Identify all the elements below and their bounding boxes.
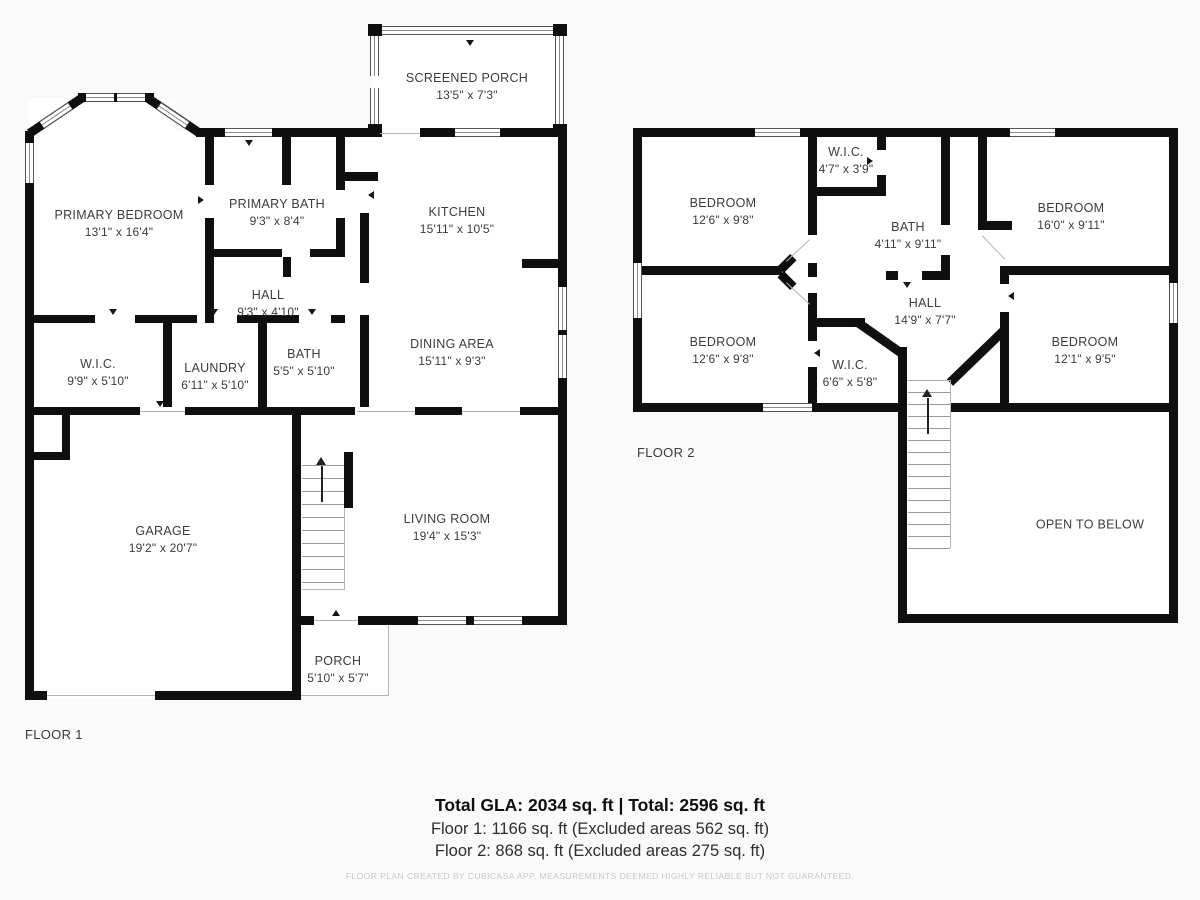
wall <box>258 323 267 407</box>
opening-line <box>950 380 951 548</box>
wall <box>336 128 345 190</box>
room-label-laundry: LAUNDRY6'11" x 5'10" <box>181 360 249 394</box>
room-dims: 6'6" x 5'8" <box>823 374 878 391</box>
room-dims: 19'4" x 15'3" <box>404 528 491 545</box>
wall <box>941 137 950 225</box>
room-name: BEDROOM <box>690 195 757 212</box>
wall <box>272 128 380 137</box>
window <box>474 616 522 625</box>
room-dims: 9'3" x 4'10" <box>237 304 299 321</box>
opening-line <box>302 589 345 590</box>
stairs-up-arrow <box>927 398 929 434</box>
floor2-label: FLOOR 2 <box>637 445 695 460</box>
door-arrow-icon <box>308 309 316 315</box>
room-dims: 12'6" x 9'8" <box>690 351 757 368</box>
wall <box>155 691 301 700</box>
window <box>370 88 379 124</box>
room-label-dining-area: DINING AREA15'11" x 9'3" <box>410 336 494 370</box>
wall <box>800 128 1010 137</box>
wall <box>420 128 455 137</box>
window <box>382 26 553 35</box>
room-label-bath-f2: BATH4'11" x 9'11" <box>875 219 942 253</box>
wall <box>282 137 291 185</box>
wall <box>633 128 755 137</box>
opening-line <box>47 695 155 696</box>
wall <box>950 403 1178 412</box>
opening-line <box>357 411 415 412</box>
wall <box>978 137 987 230</box>
room-dims: 9'3" x 8'4" <box>229 213 325 230</box>
wall <box>1169 128 1178 283</box>
window <box>755 128 800 137</box>
door-arrow-icon <box>245 140 253 146</box>
wall <box>522 259 558 268</box>
wall <box>922 271 950 280</box>
room-label-open-to-below: OPEN TO BELOW <box>1036 517 1144 534</box>
room-dims: 6'11" x 5'10" <box>181 377 249 394</box>
wall <box>898 347 907 623</box>
room-label-bedroom-3: BEDROOM12'6" x 9'8" <box>690 334 757 368</box>
wall <box>978 221 1012 230</box>
room-name: BATH <box>273 346 335 363</box>
wall <box>205 249 282 257</box>
room-name: W.I.C. <box>819 144 874 161</box>
room-label-screened-porch: SCREENED PORCH13'5" x 7'3" <box>406 70 528 104</box>
wall <box>185 407 355 415</box>
stair-tread <box>908 536 950 537</box>
wall <box>331 315 345 323</box>
wall <box>877 175 886 196</box>
door-arrow-icon <box>332 610 340 616</box>
wall <box>877 137 886 150</box>
wall <box>135 315 197 323</box>
opening-line <box>314 620 358 621</box>
door-arrow-icon <box>814 349 820 357</box>
room-name: PORCH <box>307 653 369 670</box>
stair-tread <box>908 500 950 501</box>
wall <box>25 407 140 415</box>
room-dims: 12'1" x 9'5" <box>1052 351 1119 368</box>
wall <box>558 128 567 287</box>
room-label-garage: GARAGE19'2" x 20'7" <box>129 523 197 557</box>
stair-tread <box>908 488 950 489</box>
wall <box>368 24 382 36</box>
door-arrow-icon <box>466 40 474 46</box>
stair-tread <box>302 543 344 544</box>
window <box>1010 128 1055 137</box>
room-name: LAUNDRY <box>181 360 249 377</box>
stair-tread <box>302 504 344 505</box>
room-label-porch: PORCH5'10" x 5'7" <box>307 653 369 687</box>
floorplan-drawing <box>0 0 1200 900</box>
wall <box>25 452 70 460</box>
room-dims: 5'5" x 5'10" <box>273 363 335 380</box>
wall <box>310 249 345 257</box>
window <box>558 287 567 330</box>
room-name: PRIMARY BEDROOM <box>54 207 183 224</box>
wall <box>898 614 1178 623</box>
room-name: OPEN TO BELOW <box>1036 517 1144 534</box>
wall <box>344 452 353 508</box>
room-label-bedroom-2: BEDROOM16'0" x 9'11" <box>1037 200 1105 234</box>
room-label-wic-1-f2: W.I.C.4'7" x 3'9" <box>819 144 874 178</box>
wall <box>25 691 47 700</box>
stairs-up-arrow <box>316 457 326 465</box>
door-arrow-icon <box>210 309 218 315</box>
opening-line <box>140 411 185 412</box>
wall <box>205 218 214 323</box>
stair-tread <box>908 476 950 477</box>
disclaimer-text: FLOOR PLAN CREATED BY CUBICASA APP. MEAS… <box>0 871 1200 881</box>
wall <box>360 213 369 283</box>
stair-tread <box>908 404 950 405</box>
room-label-bedroom-4: BEDROOM12'1" x 9'5" <box>1052 334 1119 368</box>
wall <box>520 407 567 415</box>
opening-line <box>907 380 950 381</box>
room-name: SCREENED PORCH <box>406 70 528 87</box>
room-name: W.I.C. <box>67 356 129 373</box>
total-gla-text: Total GLA: 2034 sq. ft | Total: 2596 sq.… <box>0 795 1200 816</box>
room-name: BEDROOM <box>690 334 757 351</box>
room-dims: 15'11" x 9'3" <box>410 353 494 370</box>
stair-tread <box>302 465 344 466</box>
window <box>633 263 642 318</box>
window <box>455 128 500 137</box>
wall <box>292 412 301 700</box>
wall <box>360 315 369 407</box>
window <box>225 128 272 137</box>
stair-tread <box>302 530 344 531</box>
room-dims: 9'9" x 5'10" <box>67 373 129 390</box>
room-label-kitchen: KITCHEN15'11" x 10'5" <box>420 204 494 238</box>
floor1-label: FLOOR 1 <box>25 727 83 742</box>
wall <box>1000 266 1178 275</box>
window-mullion <box>114 93 117 102</box>
room-name: BEDROOM <box>1037 200 1105 217</box>
floor2-area-text: Floor 2: 868 sq. ft (Excluded areas 275 … <box>0 842 1200 861</box>
room-dims: 13'1" x 16'4" <box>54 224 183 241</box>
wall <box>812 403 898 412</box>
room-name: BATH <box>875 219 942 236</box>
room-dims: 19'2" x 20'7" <box>129 540 197 557</box>
floor1-area-text: Floor 1: 1166 sq. ft (Excluded areas 562… <box>0 820 1200 839</box>
room-name: DINING AREA <box>410 336 494 353</box>
window <box>763 403 812 412</box>
stair-tread <box>302 517 344 518</box>
wall <box>205 137 214 185</box>
wall <box>1000 275 1009 284</box>
room-dims: 15'11" x 10'5" <box>420 221 494 238</box>
room-name: HALL <box>237 287 299 304</box>
room-label-living-room: LIVING ROOM19'4" x 15'3" <box>404 511 491 545</box>
stair-tread <box>908 512 950 513</box>
wall <box>1055 128 1178 137</box>
stair-tread <box>908 548 950 549</box>
wall <box>345 172 378 181</box>
room-name: W.I.C. <box>823 357 878 374</box>
stair-tread <box>302 582 344 583</box>
room-dims: 14'9" x 7'7" <box>894 312 956 329</box>
opening-line <box>388 625 389 696</box>
wall <box>808 263 817 277</box>
stair-tread <box>908 416 950 417</box>
room-name: BEDROOM <box>1052 334 1119 351</box>
room-label-wic-f1: W.I.C.9'9" x 5'10" <box>67 356 129 390</box>
room-label-wic-2-f2: W.I.C.6'6" x 5'8" <box>823 357 878 391</box>
room-name: GARAGE <box>129 523 197 540</box>
wall <box>553 24 567 36</box>
room-label-primary-bedroom: PRIMARY BEDROOM13'1" x 16'4" <box>54 207 183 241</box>
opening-line <box>462 411 520 412</box>
stair-tread <box>302 556 344 557</box>
wall <box>163 323 172 407</box>
stair-tread <box>302 491 344 492</box>
wall <box>633 137 642 263</box>
wall <box>25 131 34 700</box>
wall <box>466 616 474 625</box>
room-dims: 13'5" x 7'3" <box>406 87 528 104</box>
door-arrow-icon <box>198 196 204 204</box>
window <box>1169 283 1178 323</box>
wall <box>558 378 567 625</box>
room-name: PRIMARY BATH <box>229 196 325 213</box>
wall <box>1169 323 1178 623</box>
wall <box>808 187 886 196</box>
room-label-bath-f1: BATH5'5" x 5'10" <box>273 346 335 380</box>
stair-tread <box>908 452 950 453</box>
opening-line <box>301 695 389 696</box>
room-label-hall-f2: HALL14'9" x 7'7" <box>894 295 956 329</box>
room-dims: 12'6" x 9'8" <box>690 212 757 229</box>
stair-tread <box>908 524 950 525</box>
door-arrow-icon <box>109 309 117 315</box>
room-label-primary-bath: PRIMARY BATH9'3" x 8'4" <box>229 196 325 230</box>
room-name: HALL <box>894 295 956 312</box>
wall <box>283 257 291 277</box>
door-arrow-icon <box>368 191 374 199</box>
stairs-up-arrow <box>321 466 323 502</box>
room-dims: 4'11" x 9'11" <box>875 236 942 253</box>
room-name: KITCHEN <box>420 204 494 221</box>
opening-line <box>344 508 345 590</box>
room-name: LIVING ROOM <box>404 511 491 528</box>
window <box>558 335 567 378</box>
door-arrow-icon <box>903 282 911 288</box>
floorplan-page: { "floor1": { "label": "FLOOR 1", "rooms… <box>0 0 1200 900</box>
wall <box>633 318 642 412</box>
wall <box>415 407 462 415</box>
window <box>370 36 379 76</box>
stairs-up-arrow <box>922 389 932 397</box>
room-dims: 16'0" x 9'11" <box>1037 217 1105 234</box>
wall <box>886 271 898 280</box>
wall <box>633 403 763 412</box>
wall <box>642 266 782 275</box>
window <box>555 36 564 124</box>
room-dims: 4'7" x 3'9" <box>819 161 874 178</box>
wall <box>25 315 95 323</box>
wall <box>808 327 817 341</box>
wall <box>296 616 314 625</box>
stair-tread <box>908 440 950 441</box>
stair-tread <box>302 478 344 479</box>
window <box>418 616 466 625</box>
stair-tread <box>302 569 344 570</box>
stair-tread <box>908 464 950 465</box>
room-dims: 5'10" x 5'7" <box>307 670 369 687</box>
door-arrow-icon <box>156 401 164 407</box>
wall <box>500 128 567 137</box>
window <box>25 143 34 183</box>
room-label-bedroom-1: BEDROOM12'6" x 9'8" <box>690 195 757 229</box>
opening-line <box>380 133 420 134</box>
wall <box>368 124 382 137</box>
wall <box>358 616 418 625</box>
door-arrow-icon <box>1008 292 1014 300</box>
wall <box>808 196 817 235</box>
stair-tread <box>908 428 950 429</box>
room-label-hall-f1: HALL9'3" x 4'10" <box>237 287 299 321</box>
